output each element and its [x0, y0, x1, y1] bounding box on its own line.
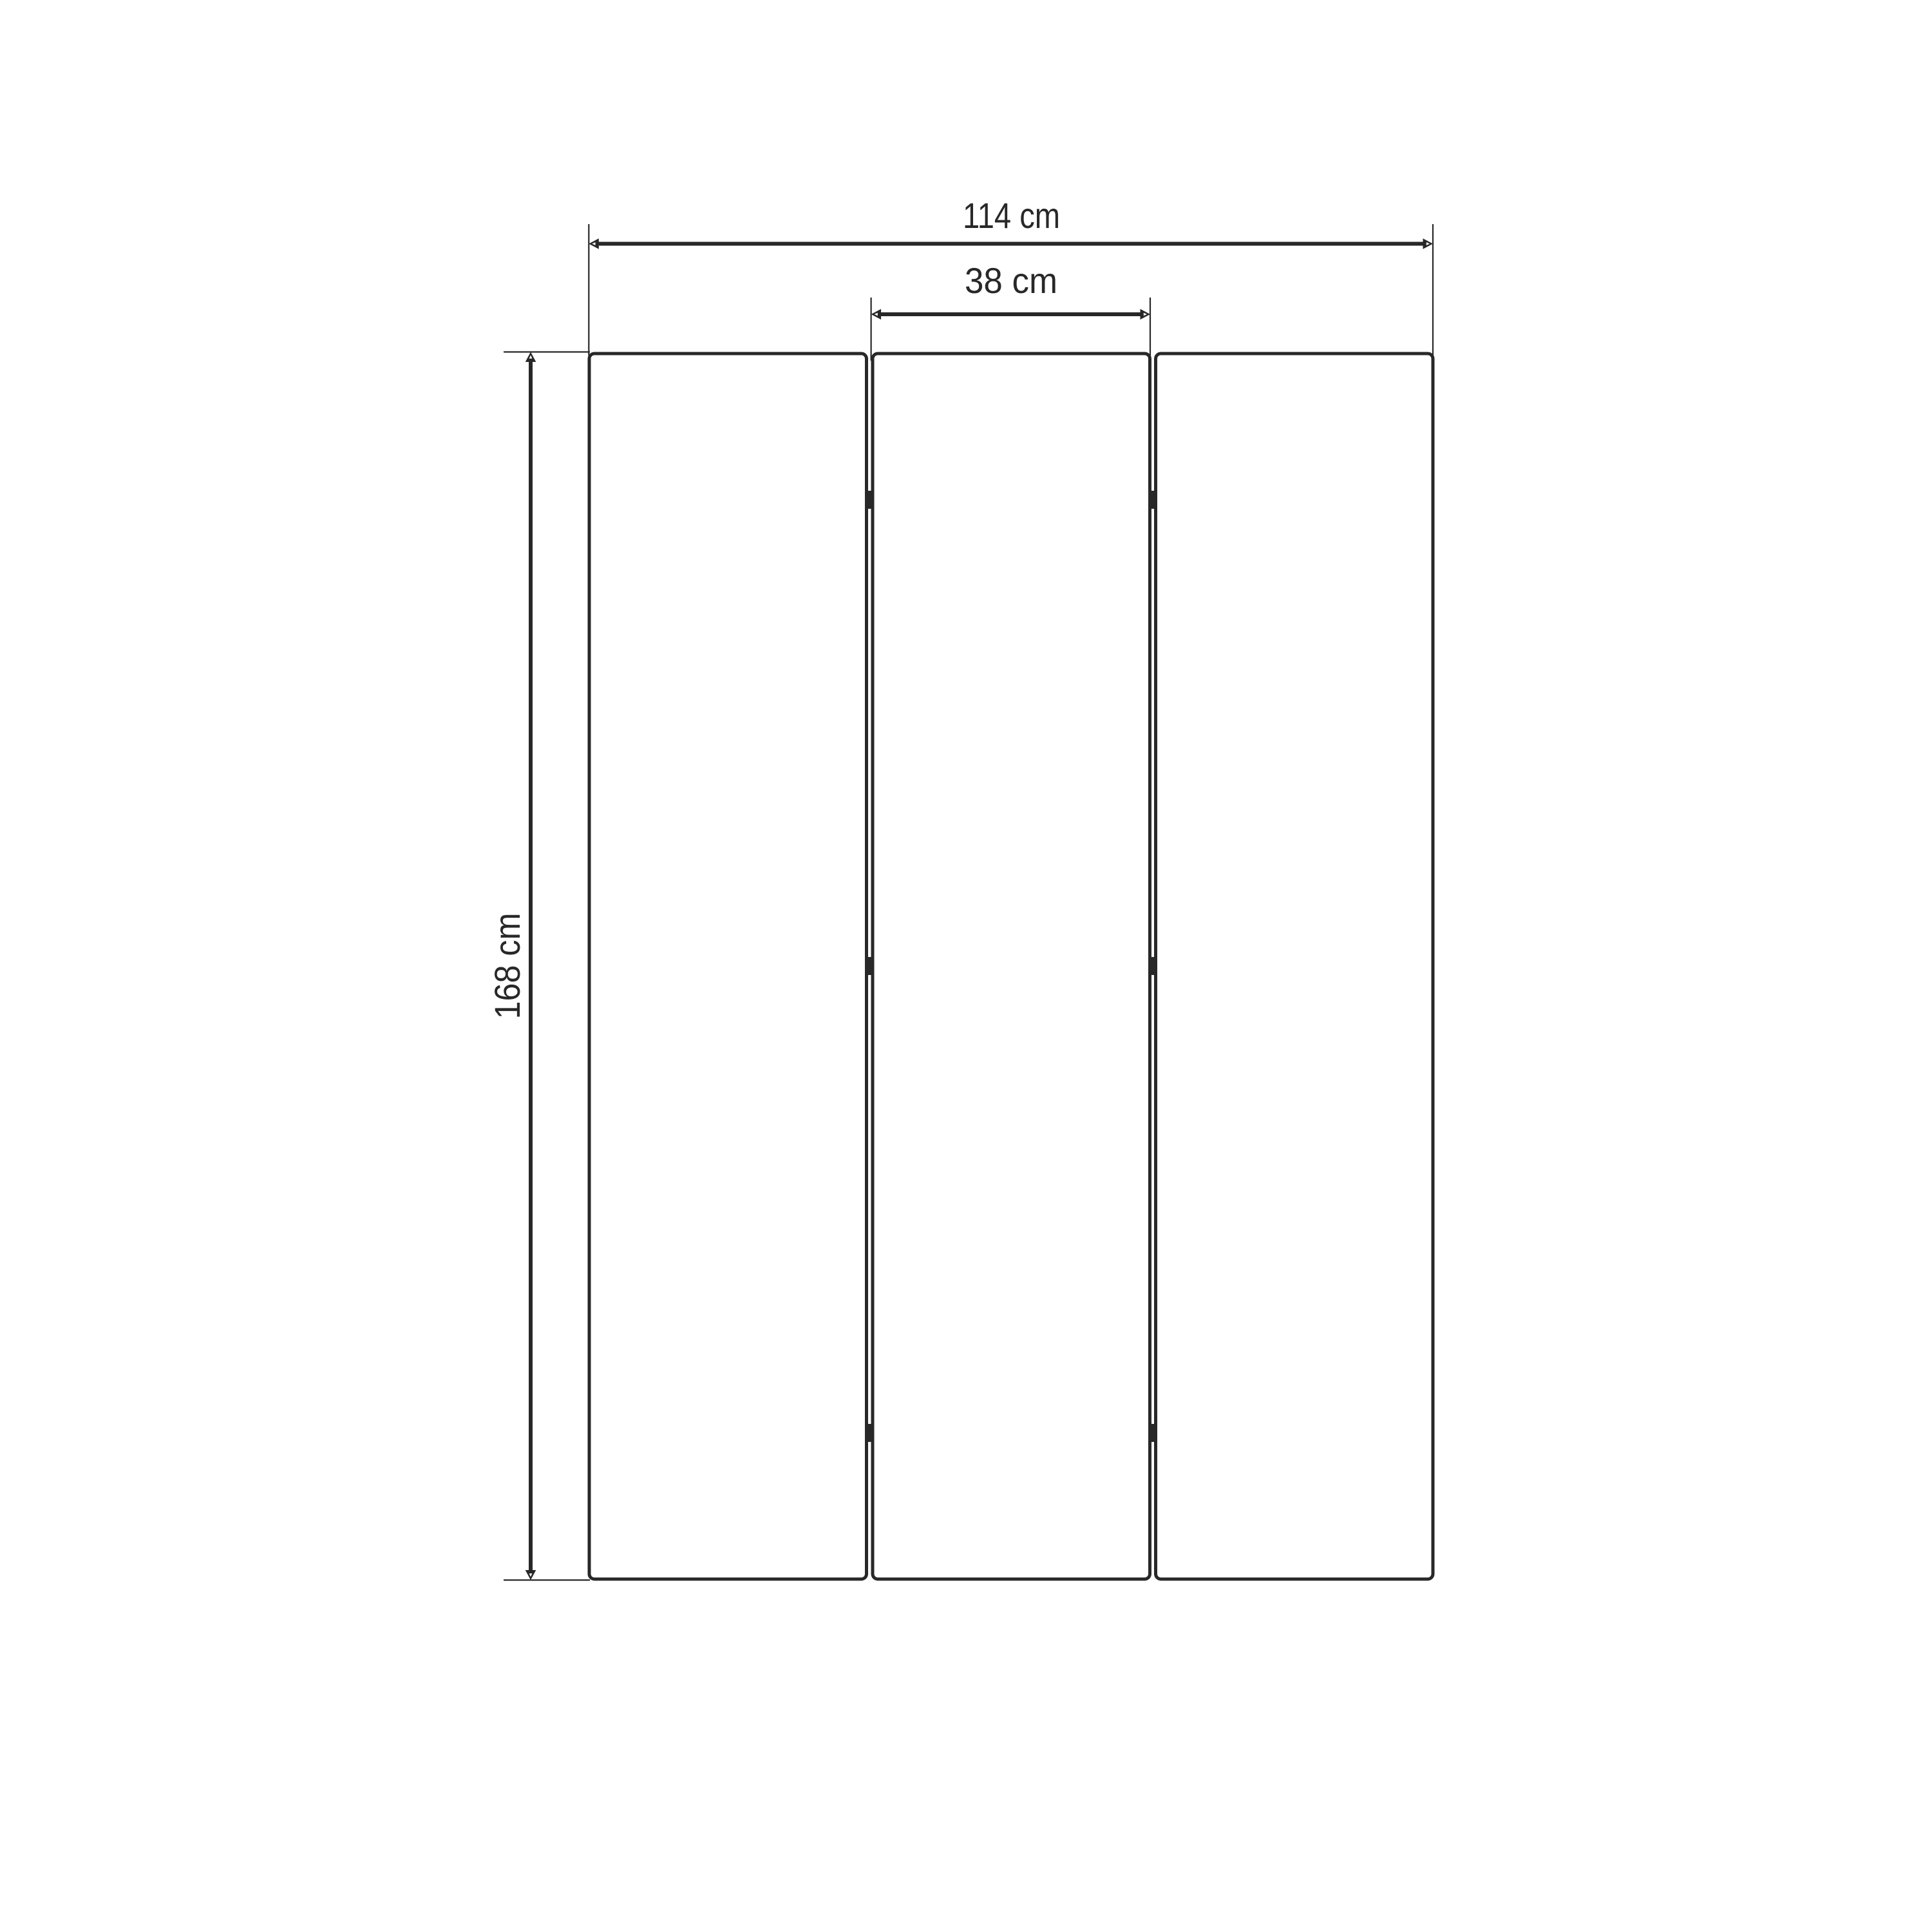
svg-text:114 cm: 114 cm: [963, 195, 1060, 236]
svg-text:168 cm: 168 cm: [487, 913, 527, 1019]
svg-text:38 cm: 38 cm: [965, 260, 1057, 301]
